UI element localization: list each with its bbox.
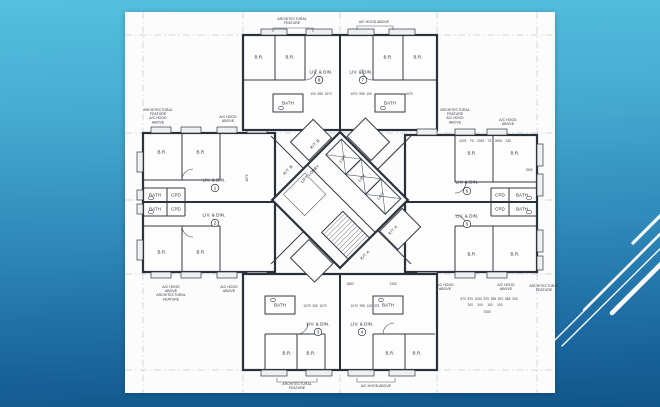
room-label: LIV. & DIN. [456,213,479,218]
core-label: LIFT [376,191,385,200]
slide-background: B.R.B.R.B.R.B.R.LIV. & DIN.LIV. & DIN.BA… [0,0,660,407]
room-label: BATH [516,206,528,211]
plan-labels-layer: B.R.B.R.B.R.B.R.LIV. & DIN.LIV. & DIN.BA… [125,12,555,393]
unit-number-badge: 2 [211,219,219,227]
annotation-label: A/C HOOD ABOVE [220,285,237,293]
room-label: BATH [382,302,394,307]
annotation-label: ARCHITECTURAL FEATURE A/C HOOD ABOVE [440,108,470,124]
core-label: LIFT [357,173,366,182]
room-label: B.R. [467,150,476,155]
dimension-label: 1330 [389,282,396,286]
room-label: BATH [149,206,161,211]
room-label: B.R. [510,251,519,256]
room-label: CPD [171,206,181,211]
unit-number-badge: 8 [315,76,323,84]
dimension-label: 100 100 100 100 [468,303,503,307]
dimension-label: 1070 995 100 375 [351,304,379,308]
core-label: KIT. B [282,164,293,175]
room-label: B.R. [285,54,294,59]
room-label: LIV. & DIN. [456,179,479,184]
room-label: B.R. [254,54,263,59]
room-label: B.R. [196,249,205,254]
unit-number-badge: 7 [359,76,367,84]
annotation-label: ARCHITECTURAL FEATURE [277,17,307,25]
core-label: KIT. B [309,138,320,149]
room-label: CPD [495,192,505,197]
dimension-label: 1860 [346,282,353,286]
unit-number-badge: 6 [463,187,471,195]
dimension-label: 1530 [525,168,532,172]
room-label: CPD [171,192,181,197]
floor-plan-panel: B.R.B.R.B.R.B.R.LIV. & DIN.LIV. & DIN.BA… [125,12,555,393]
dimension-label: 1075 205 1070 [303,304,326,308]
room-label: CPD [495,206,505,211]
room-label: LIV. & DIN. [307,321,330,326]
core-label: KIT. A [359,249,370,260]
room-label: B.R. [413,54,422,59]
room-label: BATH [384,100,396,105]
room-label: B.R. [510,150,519,155]
annotation-label: ARCHITECTURAL FEATURE [529,284,559,292]
room-label: B.R. [157,149,166,154]
dimension-label: 2475 75 2025 75 2695 235 [459,139,511,143]
dimension-label: 1070 995 100 [350,92,371,96]
room-label: LIV. & DIN. [203,177,226,182]
dimension-label: 100 995 1070 [310,92,331,96]
room-label: B.R. [196,149,205,154]
core-label: LIFT LOBBY [300,164,320,184]
room-label: B.R. [467,251,476,256]
room-label: B.R. [385,350,394,355]
room-label: LIV. & DIN. [350,69,373,74]
dimension-label: 7505 [483,310,490,314]
unit-number-badge: 1 [211,184,219,192]
annotation-label: A/C HOOD ABOVE [436,283,453,291]
unit-number-badge: 3 [314,328,322,336]
room-label: BATH [149,192,161,197]
room-label: LIV. & DIN. [351,321,374,326]
dimension-label: 1075 [405,92,412,96]
annotation-label: A/C HOOD ABOVE [359,20,389,24]
room-label: B.R. [383,54,392,59]
room-label: B.R. [157,249,166,254]
annotation-label: A/C HOOD ABOVE [219,115,236,123]
room-label: B.R. [412,350,421,355]
annotation-label: A/C HOOD ABOVE [497,283,514,291]
dimension-label: 1075 [245,174,249,181]
core-label: KIT. A [387,224,398,235]
annotation-label: ARCHITECTURAL FEATURE A/C HOOD ABOVE [143,108,173,124]
annotation-label: A/C HOOD ABOVE ARCHITECTURAL FEATURE [156,285,186,301]
room-label: BATH [516,192,528,197]
annotation-label: A/C HOOD ABOVE [361,384,391,388]
room-label: B.R. [306,350,315,355]
annotation-label: A/C HOOD ABOVE [499,118,516,126]
room-label: LIV. & DIN. [203,212,226,217]
room-label: BATH [282,100,294,105]
room-label: B.R. [282,350,291,355]
annotation-label: ARCHITECTURAL FEATURE [282,382,312,390]
room-label: BATH [274,302,286,307]
unit-number-badge: 5 [463,220,471,228]
unit-number-badge: 4 [358,328,366,336]
core-label: LIFT [338,154,347,163]
room-label: LIV. & DIN. [310,69,333,74]
dimension-label: 870 870 1000 870 935 870 585 205 [461,297,518,301]
